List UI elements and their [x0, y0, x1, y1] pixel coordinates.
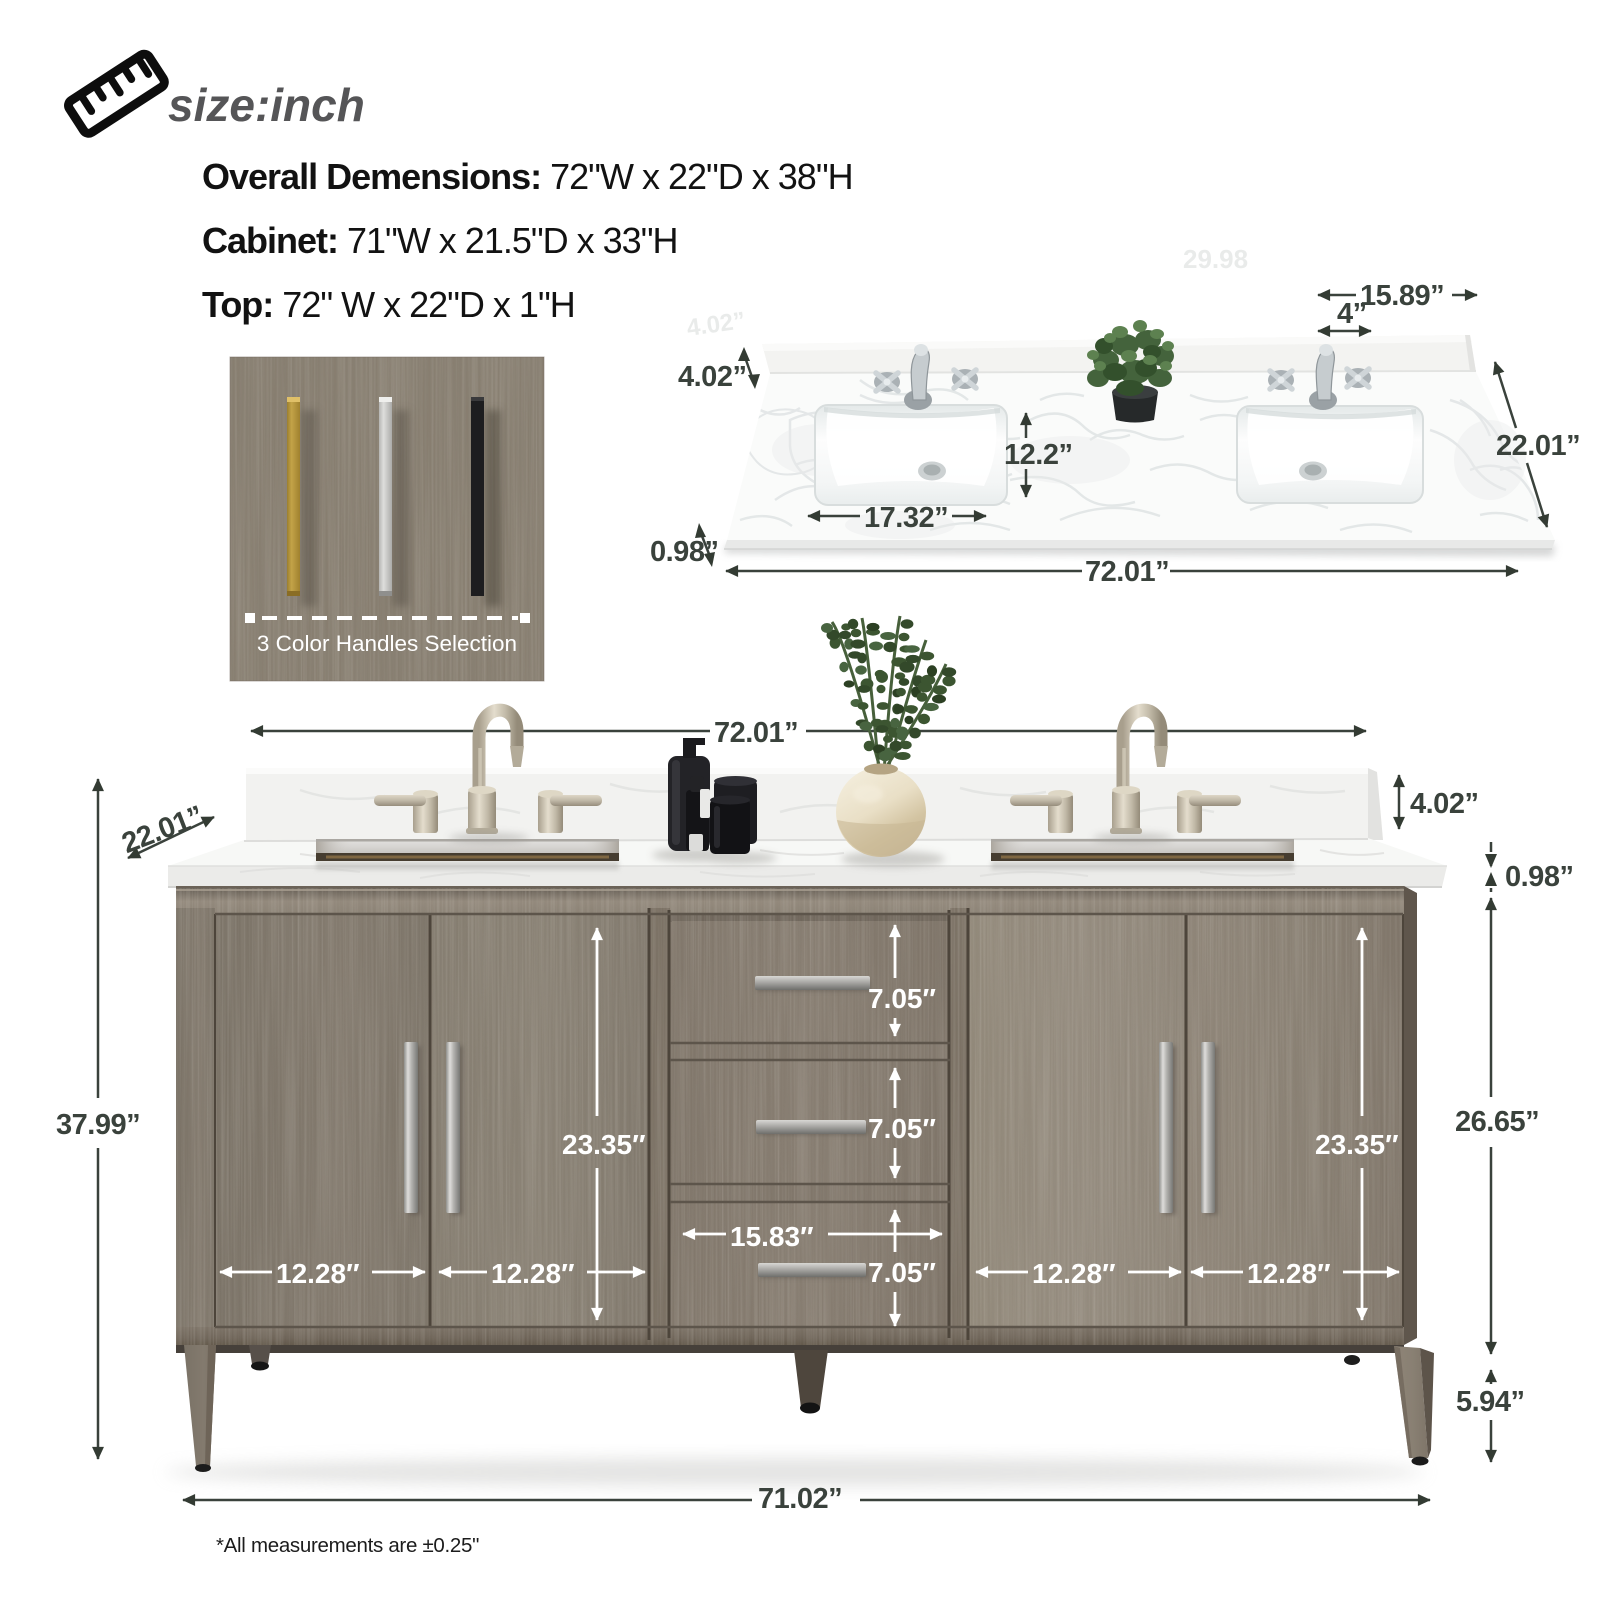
svg-text:37.99”: 37.99”: [56, 1109, 140, 1141]
svg-text:7.05″: 7.05″: [868, 1257, 936, 1288]
svg-text:4”: 4”: [1337, 298, 1367, 330]
svg-text:4.02”: 4.02”: [678, 361, 746, 393]
svg-text:4.02”: 4.02”: [1410, 788, 1478, 820]
svg-text:12.28″: 12.28″: [276, 1258, 359, 1289]
svg-text:Overall Demensions: 72"W x 22": Overall Demensions: 72"W x 22"D x 38"H: [202, 156, 853, 197]
svg-text:12.28″: 12.28″: [491, 1258, 574, 1289]
svg-text:71.02”: 71.02”: [758, 1483, 842, 1515]
svg-text:72.01”: 72.01”: [1085, 556, 1169, 588]
svg-text:15.83″: 15.83″: [730, 1221, 813, 1252]
svg-text:22.01”: 22.01”: [1496, 430, 1580, 462]
svg-text:12.28″: 12.28″: [1247, 1258, 1330, 1289]
svg-text:*All measurements are ±0.25": *All measurements are ±0.25": [216, 1534, 479, 1557]
svg-text:Cabinet: 71"W x 21.5"D x 33"H: Cabinet: 71"W x 21.5"D x 33"H: [202, 220, 677, 261]
svg-text:23.35″: 23.35″: [1315, 1129, 1398, 1160]
svg-text:23.35″: 23.35″: [562, 1129, 645, 1160]
svg-text:0.98”: 0.98”: [650, 536, 718, 568]
svg-text:72.01”: 72.01”: [714, 717, 798, 749]
svg-text:12.28″: 12.28″: [1032, 1258, 1115, 1289]
svg-text:7.05″: 7.05″: [868, 983, 936, 1014]
svg-text:15.89”: 15.89”: [1360, 280, 1444, 312]
svg-text:29.98: 29.98: [1183, 244, 1248, 274]
svg-text:12.2”: 12.2”: [1004, 439, 1072, 471]
svg-text:3 Color Handles Selection: 3 Color Handles Selection: [257, 631, 517, 656]
svg-text:26.65”: 26.65”: [1455, 1106, 1539, 1138]
svg-text:0.98”: 0.98”: [1505, 861, 1573, 893]
svg-text:7.05″: 7.05″: [868, 1113, 936, 1144]
svg-text:5.94”: 5.94”: [1456, 1386, 1524, 1418]
svg-text:size:inch: size:inch: [168, 79, 365, 131]
svg-text:17.32”: 17.32”: [864, 502, 948, 534]
svg-text:Top: 72" W x 22"D x 1"H: Top: 72" W x 22"D x 1"H: [202, 284, 575, 325]
